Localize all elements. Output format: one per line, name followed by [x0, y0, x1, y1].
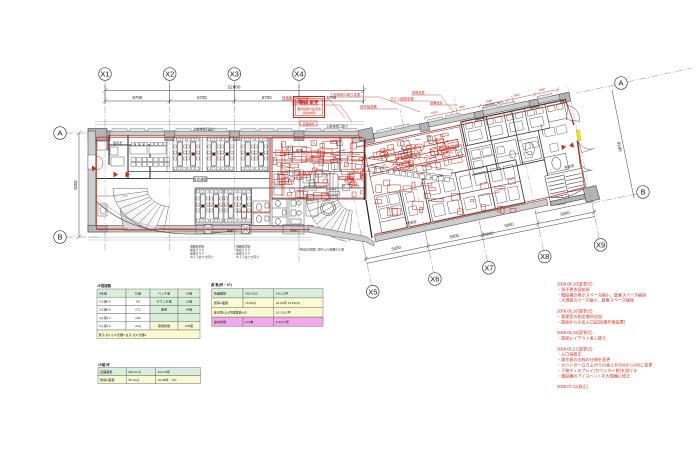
svg-text:402.02㎡: 402.02㎡ [245, 290, 258, 295]
svg-text:10.12人/坪: 10.12人/坪 [276, 310, 291, 315]
svg-text:X6: X6 [430, 275, 439, 284]
svg-text:・厨房レイアウト差し替え: ・厨房レイアウト差し替え [557, 335, 606, 341]
svg-text:ｗ１２白つき同り: ｗ１２白つき同り [236, 254, 259, 259]
svg-text:・階段横のアイスベットを大規模に修正: ・階段横のアイスベットを大規模に修正 [557, 372, 630, 378]
svg-text:X7: X7 [484, 263, 493, 272]
svg-text:勶除口: 勶除口 [290, 228, 299, 233]
svg-text:X1: X1 [100, 70, 109, 79]
svg-text:79.38㎡: 79.38㎡ [245, 300, 257, 305]
svg-text:変更箇所: 変更箇所 [302, 121, 314, 126]
svg-text:・管理室の指定場所追加: ・管理室の指定場所追加 [557, 313, 602, 319]
svg-text:5700: 5700 [132, 95, 142, 100]
svg-text:2人席×9: 2人席×9 [99, 299, 111, 304]
svg-text:操作板設置: 操作板設置 [360, 104, 378, 109]
svg-text:X2: X2 [165, 70, 174, 79]
svg-text:X5: X5 [368, 287, 377, 296]
svg-text:9200: 9200 [73, 180, 78, 190]
svg-text:(別紙参照): (別紙参照) [302, 110, 316, 115]
svg-text:カウンタ席: カウンタ席 [156, 299, 171, 304]
svg-text:設備追加: 設備追加 [430, 100, 443, 105]
svg-text:(27): (27) [135, 308, 141, 312]
svg-text:1F容席数: 1F容席数 [97, 283, 112, 288]
svg-text:通用口: 通用口 [227, 228, 236, 233]
svg-text:5700: 5700 [262, 95, 272, 100]
svg-text:厨房変更: 厨房変更 [412, 90, 426, 95]
svg-text:・階段横の表示スペース縮小、倉庫スペース縮保: ・階段横の表示スペース縮小、倉庫スペース縮保 [557, 291, 646, 297]
svg-text:2008.06.18(変更点): 2008.06.18(変更点) [557, 329, 593, 335]
svg-text:B: B [640, 188, 645, 197]
svg-text:X9: X9 [596, 241, 605, 250]
svg-text:12席: 12席 [186, 299, 193, 304]
svg-text:564.07㎡: 564.07㎡ [128, 369, 141, 374]
svg-text:(28): (28) [135, 316, 141, 320]
svg-text:店舗面積: 店舗面積 [214, 290, 226, 295]
svg-text:24席: 24席 [186, 290, 193, 295]
svg-text:・操作板の水栓の仕様を変更: ・操作板の水栓の仕様を変更 [557, 356, 610, 362]
svg-text:52席: 52席 [135, 290, 142, 295]
svg-text:店舗面積: 店舗面積 [100, 369, 112, 374]
svg-text:席 数(坪・1F): 席 数(坪・1F) [211, 282, 232, 287]
svg-text:・厨房からの出入口追加(操作板設置): ・厨房からの出入口追加(操作板設置) [557, 318, 626, 324]
svg-text:X4: X4 [294, 70, 303, 79]
svg-text:上部排焼口取り: 上部排焼口取り [326, 124, 348, 129]
svg-text:厨房A面積: 厨房A面積 [214, 300, 228, 305]
svg-text:厨房 変更: 厨房 変更 [300, 99, 319, 106]
svg-text:上部排焼口取り変更: 上部排焼口取り変更 [330, 92, 361, 97]
svg-text:110.13坪: 110.13坪 [158, 369, 170, 374]
svg-text:基本総数: 基本総数 [214, 319, 226, 324]
svg-text:・大測組スペース縮小、倉庫スペース縮保: ・大測組スペース縮小、倉庫スペース縮保 [557, 297, 634, 303]
svg-text:4階段の踏面に横巧上り紙覆のち番: 4階段の踏面に横巧上り紙覆のち番 [299, 247, 344, 252]
svg-text:X3: X3 [230, 70, 239, 79]
svg-text:2×3傘: 2×3傘 [245, 319, 253, 324]
svg-text:3人席×9: 3人席×9 [99, 307, 111, 312]
svg-text:138席: 138席 [185, 323, 193, 328]
svg-text:B: B [57, 233, 62, 242]
svg-text:座敷: 座敷 [161, 307, 167, 312]
svg-text:5700: 5700 [197, 95, 207, 100]
svg-text:2008.06.10(変更点): 2008.06.10(変更点) [557, 281, 593, 287]
svg-text:ｗ１２白つき同り: ｗ１２白つき同り [190, 254, 213, 259]
svg-text:・干物ディスプレイ(カウンター側)を設ける: ・干物ディスプレイ(カウンター側)を設ける [557, 367, 637, 373]
svg-text:2008.06.27(変更点): 2008.06.27(変更点) [557, 345, 593, 351]
svg-text:基本数(人)/管理面積(㎡): 基本数(人)/管理面積(㎡) [214, 310, 247, 315]
svg-text:(24): (24) [135, 324, 141, 328]
svg-text:1F総 坪: 1F総 坪 [98, 362, 110, 367]
svg-text:55.79㎡: 55.79㎡ [128, 377, 140, 382]
svg-text:24.01坪 13.16(%): 24.01坪 13.16(%) [276, 300, 300, 305]
svg-text:男子:大1,小2,式器1 女子:大2,式器1: 男子:大1,小2,式器1 女子:大2,式器1 [99, 332, 147, 337]
svg-text:御手洗: 御手洗 [113, 140, 122, 145]
svg-text:・男子更衣室拡張: ・男子更衣室拡張 [557, 286, 590, 292]
svg-text:2008.07.11(修正): 2008.07.11(修正) [557, 383, 589, 389]
svg-text:4人席×7: 4人席×7 [99, 315, 111, 320]
svg-text:6人席×4: 6人席×4 [99, 323, 111, 328]
svg-text:8名席: 8名席 [99, 290, 107, 295]
svg-text:ダクト経路変更: ダクト経路変更 [390, 96, 414, 101]
svg-text:16.88坪 (%): 16.88坪 (%) [158, 377, 177, 382]
svg-text:宴会通路: 宴会通路 [193, 177, 207, 182]
svg-text:1.33人/坪: 1.33人/坪 [276, 319, 289, 324]
svg-text:厨房A面積: 厨房A面積 [100, 377, 114, 382]
svg-text:A: A [618, 79, 623, 88]
svg-text:48席: 48席 [186, 307, 193, 312]
svg-text:142.11坪: 142.11坪 [276, 290, 288, 295]
svg-text:2008.06.16(変更点): 2008.06.16(変更点) [557, 308, 593, 314]
svg-text:ベンチ席: ベンチ席 [158, 290, 170, 295]
svg-text:A: A [57, 129, 62, 138]
svg-text:・カウンター立ち上がりの高さを500から400に変更: ・カウンター立ち上がりの高さを500から400に変更 [557, 362, 653, 368]
svg-text:・入口扇修正: ・入口扇修正 [557, 351, 582, 357]
svg-text:客席総数: 客席総数 [158, 323, 170, 328]
svg-text:上部排焼口取り: 上部排焼口取り [193, 127, 215, 132]
svg-text:X8: X8 [540, 252, 549, 261]
svg-text:(8): (8) [136, 300, 140, 304]
